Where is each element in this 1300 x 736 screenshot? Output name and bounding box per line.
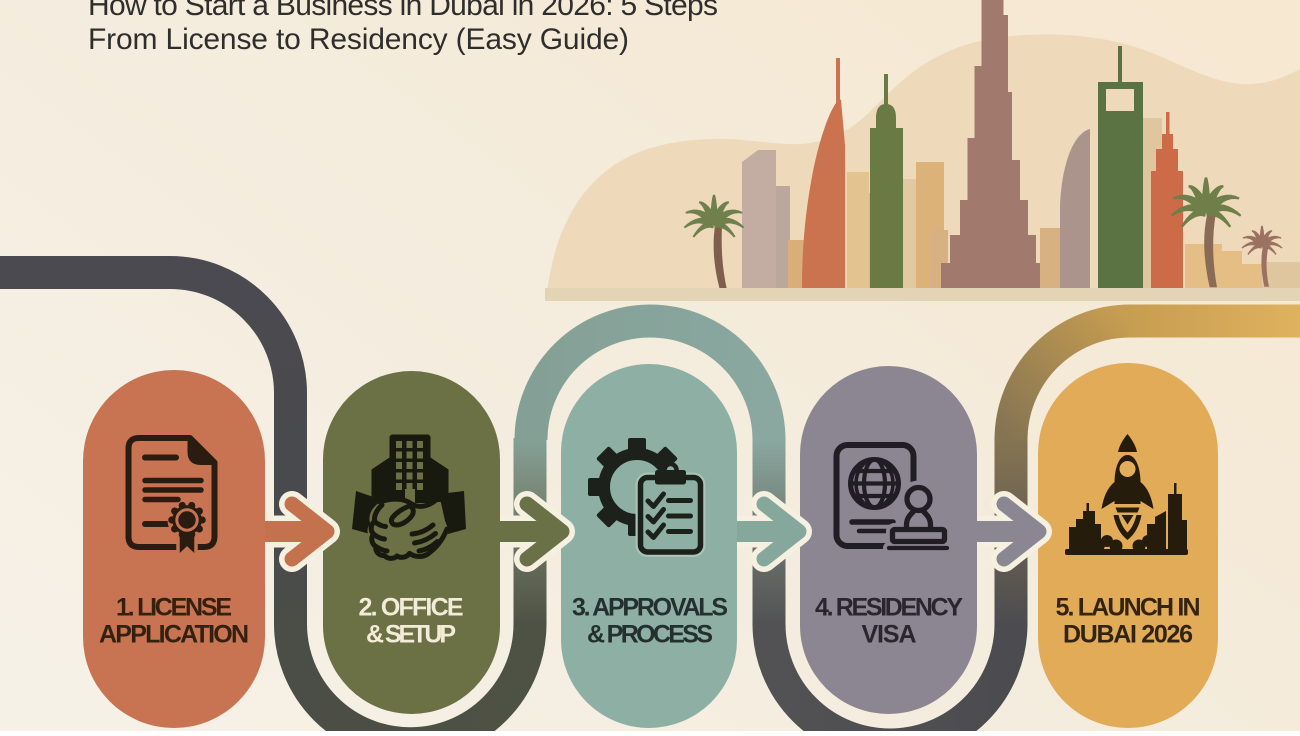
svg-text:& PROCESS: & PROCESS bbox=[587, 621, 713, 649]
svg-text:VISA: VISA bbox=[862, 621, 917, 649]
svg-text:1. LICENSE: 1. LICENSE bbox=[116, 594, 232, 622]
svg-text:How to Start a Business in Dub: How to Start a Business in Dubai in 2026… bbox=[88, 0, 718, 22]
svg-text:APPLICATION: APPLICATION bbox=[99, 621, 249, 649]
svg-text:2. OFFICE: 2. OFFICE bbox=[359, 594, 464, 622]
svg-text:3. APPROVALS: 3. APPROVALS bbox=[572, 594, 728, 622]
svg-text:DUBAI 2026: DUBAI 2026 bbox=[1063, 621, 1193, 649]
svg-text:4. RESIDENCY: 4. RESIDENCY bbox=[815, 594, 963, 622]
svg-text:From License to Residency (Eas: From License to Residency (Easy Guide) bbox=[88, 23, 629, 56]
svg-text:5. LAUNCH IN: 5. LAUNCH IN bbox=[1056, 594, 1201, 622]
svg-text:& SETUP: & SETUP bbox=[366, 621, 456, 649]
